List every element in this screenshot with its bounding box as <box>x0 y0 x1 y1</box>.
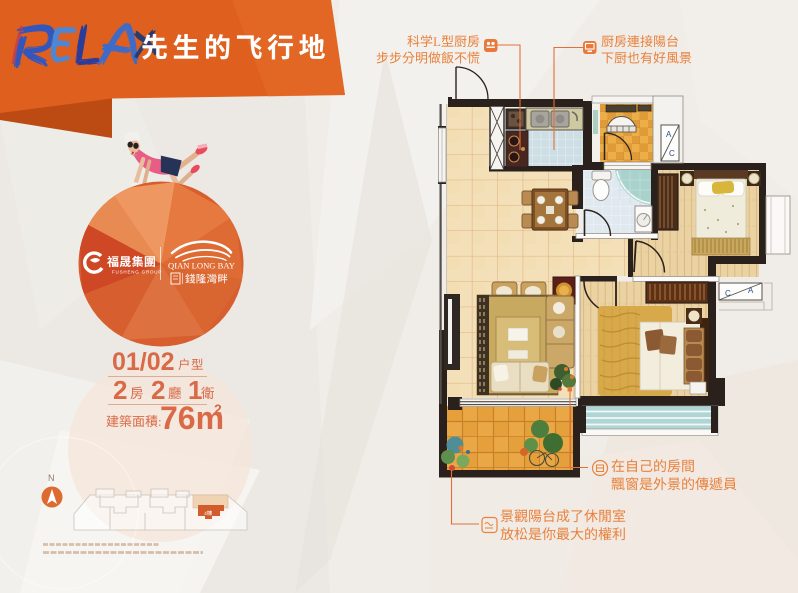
svg-text:放松是你最大的權利: 放松是你最大的權利 <box>500 524 626 544</box>
svg-text:C: C <box>669 149 675 158</box>
svg-text:N: N <box>48 473 55 483</box>
svg-text:C: C <box>725 289 731 298</box>
svg-text:錢隆灣畔: 錢隆灣畔 <box>185 272 228 287</box>
svg-text:2: 2 <box>113 375 127 405</box>
svg-text:户型: 户型 <box>178 354 204 373</box>
svg-text:A: A <box>666 130 672 139</box>
svg-text:飄窗是外景的傳遞員: 飄窗是外景的傳遞員 <box>611 474 737 494</box>
svg-text:建築面積:: 建築面積: <box>106 411 162 430</box>
svg-text:景觀陽台成了休閒室: 景觀陽台成了休閒室 <box>500 506 626 526</box>
svg-text:廳: 廳 <box>168 382 182 402</box>
svg-text:2: 2 <box>214 401 222 417</box>
svg-text:先生的飞行地: 先生的飞行地 <box>141 26 330 65</box>
svg-text:FUSHENG GROUP: FUSHENG GROUP <box>112 270 162 275</box>
svg-text:QIAN LONG BAY: QIAN LONG BAY <box>168 261 235 271</box>
svg-text:福晟集團: 福晟集團 <box>107 253 156 270</box>
svg-text:A: A <box>748 286 754 295</box>
svg-text:4棟: 4棟 <box>204 509 213 517</box>
svg-text:衛: 衛 <box>201 382 215 402</box>
svg-text:在自己的房間: 在自己的房間 <box>611 456 695 476</box>
svg-text:01/02: 01/02 <box>112 348 175 376</box>
svg-text:步步分明做飯不慌: 步步分明做飯不慌 <box>376 48 480 67</box>
svg-text:下厨也有好風景: 下厨也有好風景 <box>601 48 692 67</box>
svg-text:房: 房 <box>130 382 144 402</box>
